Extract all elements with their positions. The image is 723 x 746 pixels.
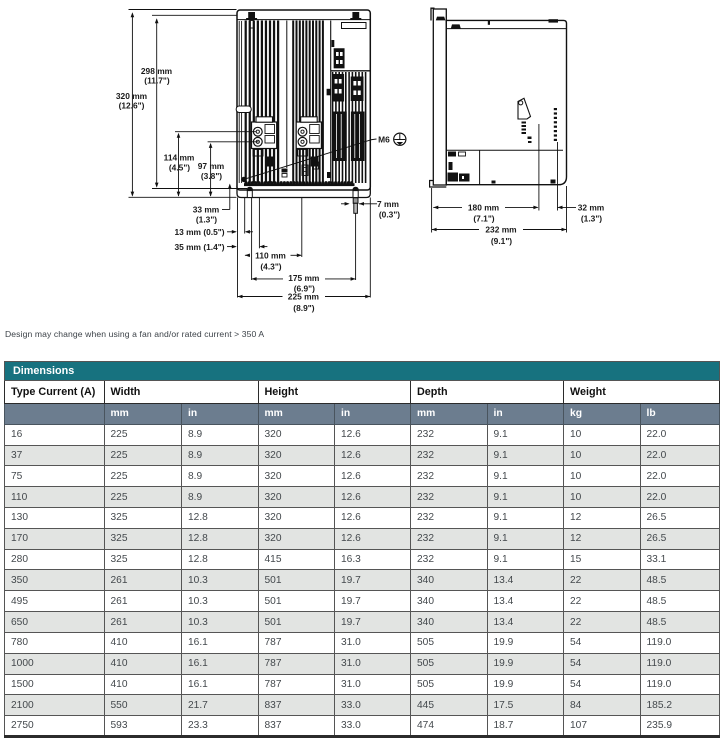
svg-text:(0.3"): (0.3") xyxy=(379,210,400,220)
svg-text:298 mm: 298 mm xyxy=(141,66,172,76)
svg-text:97 mm: 97 mm xyxy=(198,161,225,171)
svg-text:110 mm: 110 mm xyxy=(255,250,286,260)
svg-text:7 mm: 7 mm xyxy=(377,199,399,209)
svg-text:180 mm: 180 mm xyxy=(468,202,499,212)
svg-text:(11.7"): (11.7") xyxy=(144,76,170,86)
svg-text:175 mm: 175 mm xyxy=(288,273,319,283)
svg-text:(1.3"): (1.3") xyxy=(581,214,602,224)
svg-text:320 mm: 320 mm xyxy=(116,91,147,101)
svg-text:35 mm (1.4"): 35 mm (1.4") xyxy=(174,242,224,252)
svg-text:M6: M6 xyxy=(378,134,390,144)
svg-text:33 mm: 33 mm xyxy=(193,205,220,215)
svg-text:114 mm: 114 mm xyxy=(164,153,195,163)
svg-text:(4.3"): (4.3") xyxy=(260,262,281,272)
svg-text:(4.5"): (4.5") xyxy=(169,163,190,173)
svg-text:(7.1"): (7.1") xyxy=(473,214,494,224)
svg-text:(9.1"): (9.1") xyxy=(491,236,512,246)
svg-text:225 mm: 225 mm xyxy=(288,292,319,302)
svg-text:(1.3"): (1.3") xyxy=(196,215,217,225)
svg-text:13 mm (0.5"): 13 mm (0.5") xyxy=(174,227,224,237)
svg-text:32 mm: 32 mm xyxy=(578,202,605,212)
svg-text:(8.9"): (8.9") xyxy=(293,303,314,313)
svg-text:232 mm: 232 mm xyxy=(485,225,516,235)
svg-text:(12.6"): (12.6") xyxy=(119,101,145,111)
svg-text:(3.8"): (3.8") xyxy=(201,171,222,181)
